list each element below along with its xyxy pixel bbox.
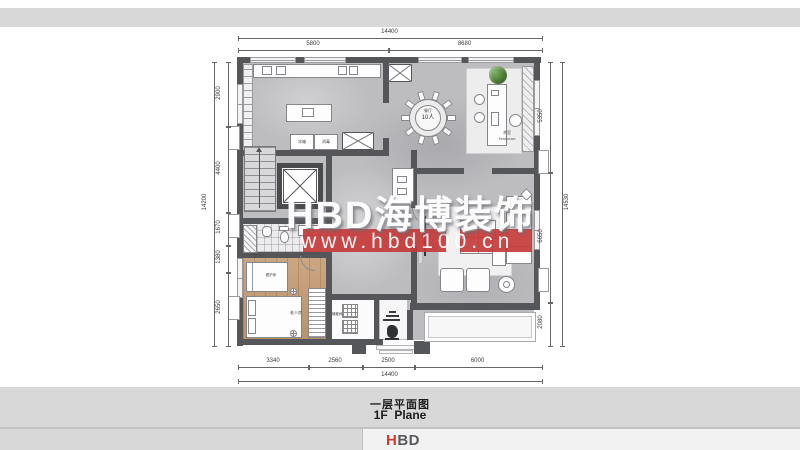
nightstand-icon (290, 330, 297, 337)
plan-title-en: 1F Plane (0, 408, 800, 422)
dim-line (548, 62, 553, 174)
cabinet-detail (397, 176, 407, 183)
dim-right-s3: 2080 (538, 302, 544, 342)
statue-base (385, 338, 399, 340)
logo-bd: BD (397, 432, 420, 449)
dim-left-s1: 2900 (216, 73, 222, 113)
dining-label: 餐厅 (418, 109, 438, 113)
window (304, 57, 346, 63)
entry-step (379, 350, 413, 354)
stair-direction-line (259, 152, 260, 208)
cooktop-icon (262, 66, 272, 75)
sink-icon (338, 66, 347, 75)
tea-room-label-en: Teahouse (490, 137, 524, 141)
fridge-label: 冰箱 (290, 140, 314, 144)
dim-top-total: 14400 (238, 29, 541, 35)
wardrobe (308, 288, 326, 338)
porch-roof-icon (389, 311, 396, 313)
dim-line (226, 272, 231, 347)
island-sink-icon (302, 108, 314, 117)
dim-line (388, 48, 543, 53)
plant-icon (489, 66, 507, 84)
care-bed-label: 看护床 (256, 274, 286, 278)
kitchen-tall-cabinet (243, 64, 253, 148)
chair (447, 115, 456, 121)
wall (492, 168, 540, 174)
window (468, 57, 514, 63)
dim-line (226, 245, 231, 274)
tea-set-icon (491, 90, 499, 96)
armchair (466, 268, 490, 292)
dim-top-s1: 5800 (238, 41, 388, 47)
side-table-inner (503, 281, 510, 288)
porch-column (352, 341, 366, 354)
wall (332, 294, 412, 300)
porch-column (414, 341, 430, 354)
logo-h: H (386, 432, 397, 449)
statue-icon (387, 325, 398, 338)
dim-line (362, 365, 416, 370)
dim-line (308, 365, 364, 370)
cooktop-icon (276, 66, 286, 75)
dim-bottom-total: 14400 (238, 372, 541, 378)
bathtub (243, 225, 257, 253)
dim-left-s5: 2650 (216, 287, 222, 327)
wall (414, 168, 464, 174)
window (237, 258, 243, 298)
dim-right-s2: 6650 (538, 216, 544, 256)
wall (407, 310, 413, 340)
dim-right-s1: 5350 (538, 96, 544, 136)
pillow (248, 318, 256, 334)
slide: 冰箱 消毒 (0, 0, 800, 450)
care-bed-pillow-line (252, 263, 253, 291)
watermark-brand: HBD海博装饰 (286, 184, 534, 239)
kitchen-counter (253, 64, 381, 78)
dim-top-s2: 8680 (388, 41, 541, 47)
dining-capacity: 10人 (417, 115, 439, 122)
brand-logo: HBD (386, 432, 420, 449)
dim-left-total: 14200 (202, 172, 208, 232)
dim-line (226, 212, 231, 247)
dim-left-s2: 4400 (216, 148, 222, 188)
footer-bar (362, 429, 800, 450)
tea-stool (509, 114, 522, 127)
nightstand-icon (290, 288, 297, 295)
dim-line (226, 126, 231, 214)
bathroom-label: 卫生间 (244, 254, 268, 258)
wall (383, 138, 389, 156)
dim-line (548, 302, 553, 347)
dim-line (414, 365, 543, 370)
sterilizer-label: 消毒 (314, 140, 338, 144)
dim-left-s4: 1380 (216, 237, 222, 277)
storage-label: 储藏间 (330, 313, 344, 317)
flue-shaft-icon (342, 132, 374, 150)
tea-chair (474, 112, 485, 123)
window (250, 57, 296, 63)
flue-shaft-icon (388, 64, 412, 82)
porch-roof-icon (383, 319, 400, 321)
bedroom-label: 老人房 (284, 311, 308, 315)
dim-bottom-s3: 2500 (362, 358, 414, 364)
patio (424, 312, 536, 342)
tea-room-label-zh: 茶室 (494, 131, 520, 135)
dim-line (238, 48, 390, 53)
wall (411, 246, 417, 310)
wall (374, 300, 379, 339)
window (418, 57, 462, 63)
bidet (262, 226, 272, 237)
storage-shelf (342, 320, 358, 334)
sink-icon (349, 66, 358, 75)
dim-line (548, 172, 553, 304)
dim-line (238, 379, 543, 384)
dim-bottom-s1: 3340 (238, 358, 308, 364)
porch-roof-icon (386, 315, 399, 317)
tea-chair (474, 94, 485, 105)
dim-bottom-s4: 6000 (414, 358, 541, 364)
wall (410, 303, 540, 310)
dim-line (238, 365, 310, 370)
dim-right-total: 14530 (564, 172, 570, 232)
armchair (440, 268, 464, 292)
pillow (248, 300, 256, 316)
dim-line (226, 62, 231, 128)
dim-bottom-s2: 2560 (308, 358, 362, 364)
storage-shelf (342, 304, 358, 318)
stair-arrow-icon (256, 147, 262, 152)
tea-tray-icon (491, 112, 499, 126)
